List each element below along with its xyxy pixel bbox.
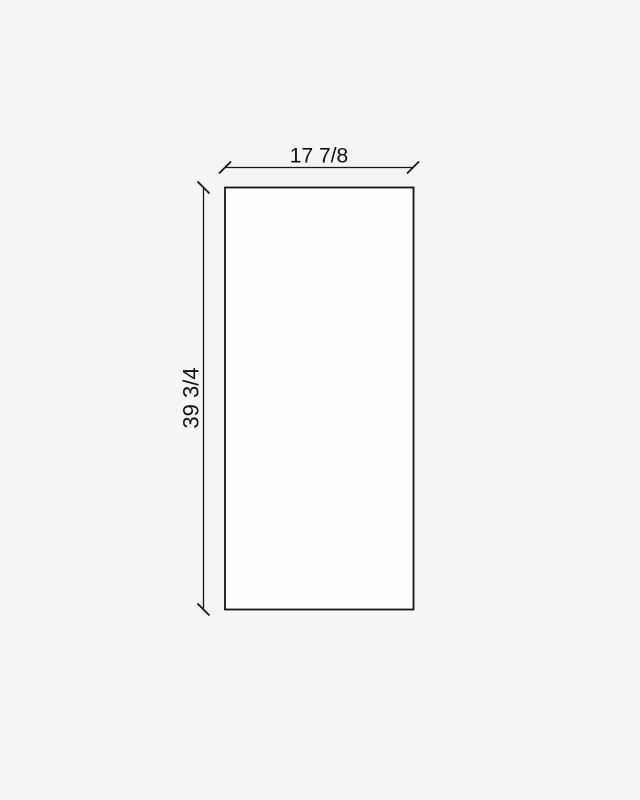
- svg-text:39 3/4: 39 3/4: [179, 367, 204, 428]
- svg-text:17 7/8: 17 7/8: [290, 145, 348, 168]
